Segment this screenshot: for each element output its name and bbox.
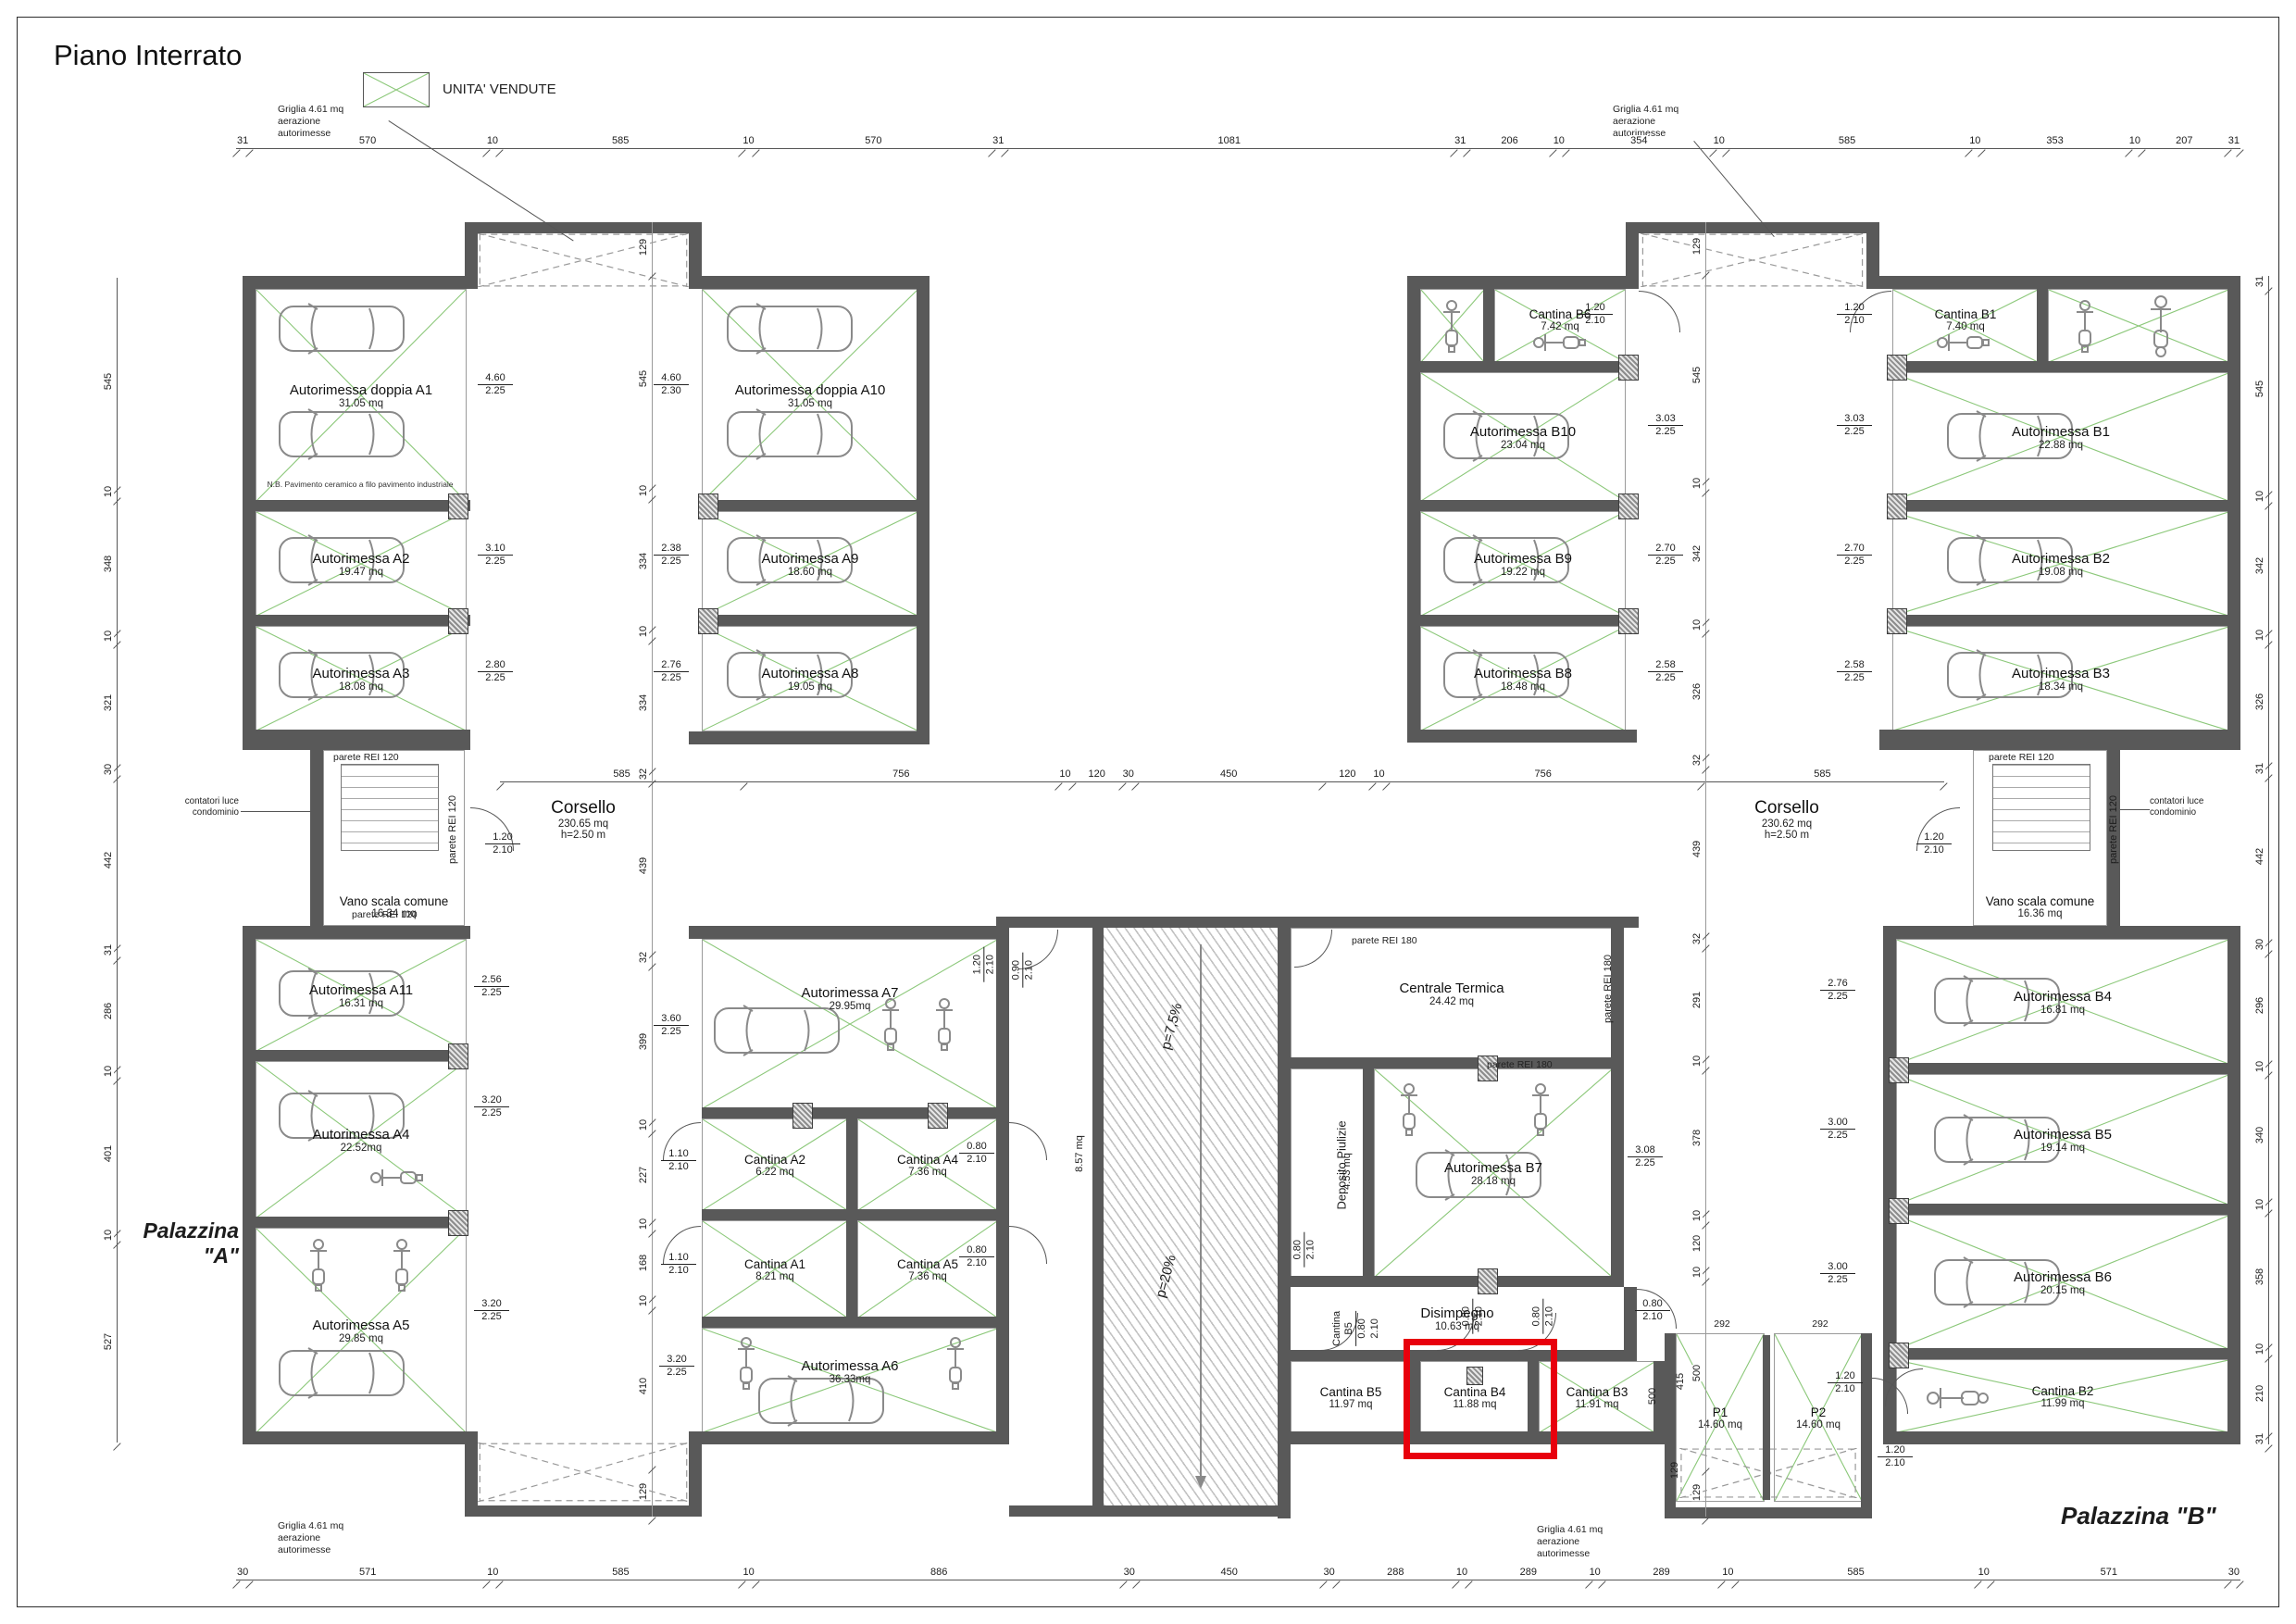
corridor-ramp-landing: [1009, 928, 1092, 1517]
room-cantina-b5: Cantina B511.97 mq: [1291, 1361, 1411, 1433]
room-name: Autorimessa B3: [2012, 666, 2110, 681]
room-autorimessa-b8: Autorimessa B818.48 mq: [1420, 626, 1626, 731]
pillar: [1889, 1343, 1909, 1368]
room-autorimessa-b9: Autorimessa B919.22 mq: [1420, 511, 1626, 617]
dimension-segment: 10: [2252, 1199, 2268, 1210]
legend-sold-units-label: UNITA' VENDUTE: [443, 81, 556, 99]
parete-rei-180-label: parete REI 180: [1603, 955, 1614, 1023]
room-vano-scala-b: Vano scala comune16.36 mq: [1973, 750, 2107, 926]
parete-rei-120-label: parete REI 120: [333, 752, 399, 764]
car-icon: [725, 408, 855, 460]
griglia-vent-zone: [1641, 233, 1865, 287]
dimension-segment: 31: [236, 131, 249, 148]
dimension-segment: 1081: [1004, 131, 1454, 148]
wall: [1420, 361, 1635, 372]
wall: [1092, 928, 1104, 1505]
dimension-segment: 120: [1072, 765, 1122, 781]
pillar: [1889, 1198, 1909, 1224]
room-area: 29.95mq: [801, 1001, 898, 1012]
dimension-segment: 32: [1689, 932, 1705, 944]
dimension-segment: 206: [1466, 131, 1552, 148]
griglia-note-bottom-a: Griglia 4.61 mq aerazione autorimesse: [278, 1520, 343, 1556]
wall: [1009, 1505, 1291, 1517]
dimension-segment: 585: [500, 765, 743, 781]
wall: [1896, 1348, 2227, 1359]
wall: [1611, 1068, 1624, 1287]
room-area: 19.47 mq: [312, 567, 409, 578]
dimension-segment: 10: [1058, 765, 1071, 781]
dimension-segment: 442: [2252, 774, 2268, 939]
dimension-segment: 545: [2252, 288, 2268, 492]
car-icon: [712, 1005, 842, 1056]
dimension-segment: 30: [2227, 1563, 2240, 1580]
dimension-segment: 32: [1689, 754, 1705, 766]
room-name: Autorimessa A4: [312, 1127, 409, 1143]
room-area: 23.04 mq: [1470, 440, 1576, 451]
pillar: [1887, 608, 1907, 634]
dimension-segment: 10: [2252, 630, 2268, 641]
dimension-col-left: 545103481032130442312861040110527: [100, 278, 118, 1443]
room-autorimessa-a4: Autorimessa A422.52mq: [256, 1061, 467, 1218]
room-name: Autorimessa doppia A1: [290, 382, 432, 398]
dimension-segment: 442: [100, 776, 117, 944]
dimension-segment: 10: [635, 626, 652, 637]
dimension-segment: 585: [1735, 1563, 1978, 1580]
room-name: Vano scala comune: [340, 894, 449, 908]
dimension-segment: 570: [249, 131, 486, 148]
room-area: 16.36 mq: [1986, 908, 2095, 919]
wall: [1291, 1276, 1624, 1287]
room-area: 11.97 mq: [1320, 1399, 1382, 1410]
wall: [2227, 926, 2240, 1444]
dimension-segment: 30: [1323, 1563, 1336, 1580]
room-name: Autorimessa A7: [801, 985, 898, 1001]
legend-sold-units-swatch: [363, 72, 430, 107]
wall: [1665, 1333, 1676, 1518]
room-area: 8.21 mq: [744, 1271, 805, 1282]
dimension-segment: 527: [100, 1241, 117, 1443]
room-name: Autorimessa B7: [1444, 1160, 1542, 1176]
room-area: 36.33mq: [801, 1374, 898, 1385]
dimension-segment: 334: [635, 496, 652, 627]
dimension-segment: 30: [1122, 765, 1135, 781]
room-cantina-b2: Cantina B211.99 mq: [1896, 1359, 2229, 1433]
door-height: 2.25: [478, 385, 513, 397]
dimension-segment: 30: [2252, 939, 2268, 950]
room-area: 20.15 mq: [2014, 1285, 2112, 1296]
dimension-segment: 10: [1589, 1563, 1602, 1580]
wall: [2037, 289, 2048, 361]
parete-rei-180-label: parete REI 180: [1487, 1059, 1553, 1071]
dimension-segment: 354: [1566, 131, 1713, 148]
room-name: Vano scala comune: [1986, 894, 2095, 908]
dimension-segment: 10: [2252, 1343, 2268, 1355]
dimension-segment: 756: [743, 765, 1058, 781]
p-griglia-129: 129: [1669, 1462, 1680, 1479]
ramp-arrow-head: [1195, 1476, 1206, 1489]
dimension-segment: 410: [635, 1306, 652, 1467]
parete-rei-120-label: parete REI 120: [447, 795, 458, 864]
scooter-icon: [1529, 1081, 1553, 1136]
dimension-segment: 31: [2252, 762, 2268, 774]
scooter-icon: [943, 1334, 967, 1390]
room-area: 7.36 mq: [897, 1167, 958, 1178]
room-cantina-b1: Cantina B17.40 mq: [1892, 289, 2039, 363]
room-name: Cantina A2: [744, 1153, 805, 1167]
room-autorimessa-b3: Autorimessa B318.34 mq: [1892, 626, 2229, 731]
dimension-segment: 286: [100, 956, 117, 1066]
room-autorimessa-a11: Autorimessa A1116.31 mq: [256, 939, 467, 1052]
pillar: [698, 493, 718, 519]
room-area: 28.18 mq: [1444, 1176, 1542, 1187]
wall: [256, 1217, 465, 1228]
room-name: Autorimessa A3: [312, 666, 409, 681]
room-area: 18.34 mq: [2012, 681, 2110, 693]
wall: [1763, 1335, 1770, 1500]
scooter-icon: [306, 1236, 331, 1292]
wall: [1407, 276, 1639, 289]
room-autorimessa-a7: Autorimessa A729.95mq: [702, 939, 998, 1109]
corsello-b-label: Corsello 230.62 mq h=2.50 m: [1722, 798, 1852, 841]
dimension-segment: 450: [1136, 1563, 1323, 1580]
pillar: [792, 1103, 813, 1129]
dimension-segment: 10: [1968, 131, 1981, 148]
pillar: [928, 1103, 948, 1129]
dimension-segment: 450: [1135, 765, 1322, 781]
room-autorimessa-a8: Autorimessa A819.05 mq: [702, 626, 918, 731]
wall: [1883, 1431, 2240, 1444]
scooter-icon: [1530, 331, 1586, 355]
dimension-segment: 321: [100, 642, 117, 765]
room-name: Autorimessa B2: [2012, 551, 2110, 567]
dimension-segment: 401: [100, 1077, 117, 1230]
wall: [689, 222, 702, 289]
dimension-segment: 334: [635, 637, 652, 768]
dimension-segment: 289: [1468, 1563, 1588, 1580]
room-area: 4.53 mq: [1341, 1153, 1353, 1190]
wall: [256, 1050, 465, 1061]
dimension-segment: 129: [635, 1467, 652, 1517]
dimension-segment: 30: [1123, 1563, 1136, 1580]
scooter-icon: [1397, 1081, 1421, 1136]
wall: [689, 1431, 702, 1517]
p-depth-415: 415: [1675, 1373, 1686, 1390]
dimension-segment: 353: [1981, 131, 2128, 148]
room-area: 14.60 mq: [1796, 1419, 1841, 1430]
room-autorimessa-b4: Autorimessa B416.81 mq: [1896, 939, 2229, 1065]
dimension-segment: 886: [755, 1563, 1123, 1580]
dimension-col-inner-b: 1295451034210326324393229110378101201050…: [1689, 222, 1706, 1517]
dimension-segment: 32: [635, 768, 652, 780]
dimension-segment: 129: [1689, 222, 1705, 271]
dimension-segment: 10: [486, 1563, 499, 1580]
dimension-segment: 378: [1689, 1067, 1705, 1210]
dimension-segment: 10: [1372, 765, 1385, 781]
dimension-segment: 227: [635, 1131, 652, 1219]
room-name: Autorimessa A5: [312, 1318, 409, 1333]
room-name: Centrale Termica: [1399, 981, 1504, 996]
wall: [465, 1431, 478, 1517]
dimension-segment: 570: [755, 131, 992, 148]
dimension-segment: 30: [236, 1563, 249, 1580]
sold-cross-icon: [364, 73, 429, 106]
dimension-segment: 10: [1978, 1563, 1990, 1580]
room-autorimessa-a9: Autorimessa A918.60 mq: [702, 511, 918, 617]
wall: [1363, 1068, 1374, 1276]
pillar: [1618, 608, 1639, 634]
dimension-segment: 439: [1689, 766, 1705, 932]
dimension-segment: 585: [499, 1563, 742, 1580]
pillar: [448, 608, 468, 634]
dimension-segment: 31: [992, 131, 1004, 148]
wall: [702, 1209, 996, 1220]
room-name: Autorimessa B8: [1474, 666, 1572, 681]
dimension-row-middle: 585756101203045012010756585: [500, 765, 1944, 782]
wall: [702, 500, 917, 511]
ramp-hatch-area: [1104, 928, 1278, 1505]
parete-rei-120-label: parete REI 120: [2108, 795, 2119, 864]
wall: [689, 276, 930, 289]
dimension-segment: 10: [635, 1295, 652, 1306]
wall: [1896, 1204, 2227, 1215]
dimension-segment: 571: [1990, 1563, 2227, 1580]
wall: [1278, 917, 1639, 928]
dimension-segment: 756: [1386, 765, 1701, 781]
wall: [1866, 222, 1879, 289]
room-area: 19.22 mq: [1474, 567, 1572, 578]
dimension-segment: 10: [100, 486, 117, 497]
wall: [465, 1505, 702, 1517]
wall: [1407, 730, 1637, 743]
dimension-segment: 289: [1602, 1563, 1721, 1580]
wall: [1896, 1063, 2227, 1074]
room-name: Cantina A4: [897, 1153, 958, 1167]
room-autorimessa-a5: Autorimessa A529.85 mq: [256, 1228, 467, 1433]
dimension-segment: 10: [1553, 131, 1566, 148]
room-area: 19.08 mq: [2012, 567, 2110, 578]
leader-line: [241, 811, 310, 812]
griglia-vent-zone: [478, 233, 689, 287]
dimension-segment: 545: [635, 272, 652, 484]
scooter-icon: [368, 1166, 423, 1190]
dimension-segment: 288: [1336, 1563, 1455, 1580]
wall: [465, 222, 478, 289]
wall: [1861, 1333, 1872, 1518]
room-name: Autorimessa A8: [761, 666, 858, 681]
wall: [1892, 615, 2227, 626]
scooter-icon: [932, 995, 956, 1051]
room-area: 11.99 mq: [2032, 1398, 2094, 1409]
car-icon: [725, 303, 855, 355]
dimension-segment: 342: [2252, 502, 2268, 630]
pillar: [1887, 355, 1907, 381]
dimension-segment: 32: [635, 951, 652, 963]
room-name: Autorimessa B4: [2014, 989, 2112, 1005]
room-vano-scala-a: Vano scala comune16.34 mq: [323, 750, 465, 926]
dimension-segment: 10: [1689, 1056, 1705, 1067]
room-area: 18.60 mq: [761, 567, 858, 578]
wall: [1278, 917, 1291, 1518]
wall: [1883, 926, 2240, 939]
wall: [1407, 276, 1420, 743]
dimension-segment: 358: [2252, 1210, 2268, 1343]
dimension-segment: 31: [100, 944, 117, 956]
wall: [702, 1107, 996, 1118]
pavement-note: N.B. Pavimento ceramico a filo pavimento…: [265, 480, 455, 489]
scooter-icon: [1934, 331, 1990, 355]
wall: [243, 1431, 470, 1444]
wall: [465, 222, 702, 233]
dimension-segment: 10: [1689, 1210, 1705, 1221]
room-name: Autorimessa B6: [2014, 1269, 2112, 1285]
scooter-icon: [390, 1236, 414, 1292]
room-area: 29.85 mq: [312, 1333, 409, 1344]
pillar: [1618, 493, 1639, 519]
dimension-segment: 10: [2252, 1061, 2268, 1072]
dimension-segment: 10: [1689, 619, 1705, 631]
palazzina-a-label: Palazzina "A": [130, 1218, 239, 1268]
room-area: 18.08 mq: [312, 681, 409, 693]
room-area: 22.52mq: [312, 1143, 409, 1154]
wall: [1892, 500, 2227, 511]
room-name: Cantina B3: [1566, 1385, 1628, 1399]
dimension-segment: 10: [1689, 1267, 1705, 1278]
parete-rei-120-label: parete REI 120: [1989, 752, 2054, 764]
wall: [1879, 730, 2240, 750]
dimension-segment: 348: [100, 497, 117, 631]
palazzina-b-label: Palazzina "B": [2061, 1502, 2216, 1530]
dimension-segment: 10: [2252, 491, 2268, 502]
room-autorimessa-a6: Autorimessa A636.33mq: [702, 1328, 998, 1433]
dimension-segment: 296: [2252, 950, 2268, 1060]
dimension-segment: 291: [1689, 945, 1705, 1056]
room-autorimessa-b5: Autorimessa B519.14 mq: [1896, 1074, 2229, 1206]
leader-line: [2120, 809, 2150, 810]
wall: [1626, 222, 1639, 289]
room-name: Cantina B1: [1935, 307, 1997, 321]
car-icon: [277, 408, 406, 460]
dimension-segment: 571: [249, 1563, 486, 1580]
wall: [702, 615, 917, 626]
dimension-segment: 31: [2227, 131, 2240, 148]
dimension-segment: 10: [2128, 131, 2141, 148]
pillar: [448, 1043, 468, 1069]
griglia-vent-zone: [478, 1443, 689, 1502]
room-name: Autorimessa B10: [1470, 424, 1576, 440]
wall: [243, 276, 478, 289]
dimension-segment: 10: [100, 631, 117, 642]
room-area: 19.05 mq: [761, 681, 858, 693]
wall: [689, 1431, 1009, 1444]
pillar: [1889, 1057, 1909, 1083]
dimension-segment: 31: [2252, 1433, 2268, 1445]
wall: [256, 500, 470, 511]
pillar: [1887, 493, 1907, 519]
dimension-segment: 585: [1701, 765, 1944, 781]
room-name: Autorimessa B5: [2014, 1127, 2112, 1143]
room-name: Autorimessa B1: [2012, 424, 2110, 440]
dimension-segment: 326: [1689, 631, 1705, 755]
room-name: Cantina A5: [897, 1257, 958, 1271]
dimension-segment: 439: [635, 780, 652, 951]
dimension-segment: 10: [100, 1230, 117, 1241]
dimension-row-top: 3157010585105703110813120610354105851035…: [236, 131, 2240, 149]
wall: [2227, 276, 2240, 750]
dimension-segment: 168: [635, 1230, 652, 1295]
room-autorimessa-doppia-a10: Autorimessa doppia A1031.05 mq: [702, 289, 918, 502]
pillar: [1618, 355, 1639, 381]
wall: [917, 276, 930, 744]
wall: [689, 731, 930, 744]
scooter-bay-b1: [2048, 289, 2229, 363]
wall: [702, 1317, 996, 1328]
room-autorimessa-b10: Autorimessa B1023.04 mq: [1420, 372, 1626, 502]
wall: [996, 939, 1009, 1431]
room-name: Autorimessa A9: [761, 551, 858, 567]
parete-rei-180-label: parete REI 180: [1352, 935, 1417, 947]
highlight-cantina-b4: [1404, 1339, 1557, 1459]
wall: [1420, 615, 1635, 626]
room-name: Cantina B2: [2032, 1384, 2094, 1398]
room-autorimessa-a3: Autorimessa A318.08 mq: [256, 626, 467, 731]
wall: [1879, 276, 2240, 289]
scooter-icon: [734, 1334, 758, 1390]
corridor-area: 8.57 mq: [1074, 1135, 1085, 1172]
dimension-segment: 10: [100, 1066, 117, 1077]
wall: [1626, 222, 1879, 233]
car-icon: [277, 1347, 406, 1399]
motorcycle-icon: [1925, 1384, 1990, 1412]
pillar: [448, 1210, 468, 1236]
p2-width: 292: [1792, 1318, 1848, 1330]
room-area: 22.88 mq: [2012, 440, 2110, 451]
dimension-segment: 340: [2252, 1072, 2268, 1199]
dimension-segment: 129: [635, 222, 652, 272]
scooter-icon: [2073, 297, 2097, 353]
corsello-a-label: Corsello 230.65 mq h=2.50 m: [518, 798, 648, 841]
dimension-segment: 129: [1689, 1468, 1705, 1517]
ramp-arrow-line: [1200, 944, 1202, 1476]
scooter-bay-b: [1420, 289, 1485, 363]
room-name: Autorimessa A11: [309, 982, 413, 998]
room-name: Autorimessa B9: [1474, 551, 1572, 567]
room-autorimessa-doppia-a1: Autorimessa doppia A131.05 mq: [256, 289, 467, 502]
contatori-note-a: contatori luce condominio: [141, 796, 239, 818]
room-name: Autorimessa A2: [312, 551, 409, 567]
pillar: [698, 608, 718, 634]
room-area: 31.05 mq: [290, 398, 432, 409]
room-autorimessa-b7: Autorimessa B728.18 mq: [1374, 1068, 1613, 1278]
dimension-segment: 399: [635, 964, 652, 1119]
scooter-icon: [1440, 297, 1464, 353]
dimension-segment: 326: [2252, 641, 2268, 762]
page-title: Piano Interrato: [54, 39, 242, 72]
dimension-segment: 10: [742, 131, 755, 148]
room-area: 7.36 mq: [897, 1271, 958, 1282]
dimension-segment: 342: [1689, 489, 1705, 618]
motorcycle-icon: [2147, 294, 2175, 358]
wall: [1291, 1057, 1624, 1068]
dimension-segment: 120: [1322, 765, 1372, 781]
room-cantina-a2: Cantina A26.22 mq: [702, 1118, 848, 1211]
stairs-icon: [341, 764, 439, 851]
dimension-segment: 545: [1689, 271, 1705, 478]
room-area: 19.14 mq: [2014, 1143, 2112, 1154]
floor-plan-sheet: Piano Interrato UNITA' VENDUTE 315701058…: [0, 0, 2296, 1624]
stairs-icon: [1992, 764, 2090, 851]
dimension-segment: 10: [1713, 131, 1726, 148]
room-autorimessa-b2: Autorimessa B219.08 mq: [1892, 511, 2229, 617]
